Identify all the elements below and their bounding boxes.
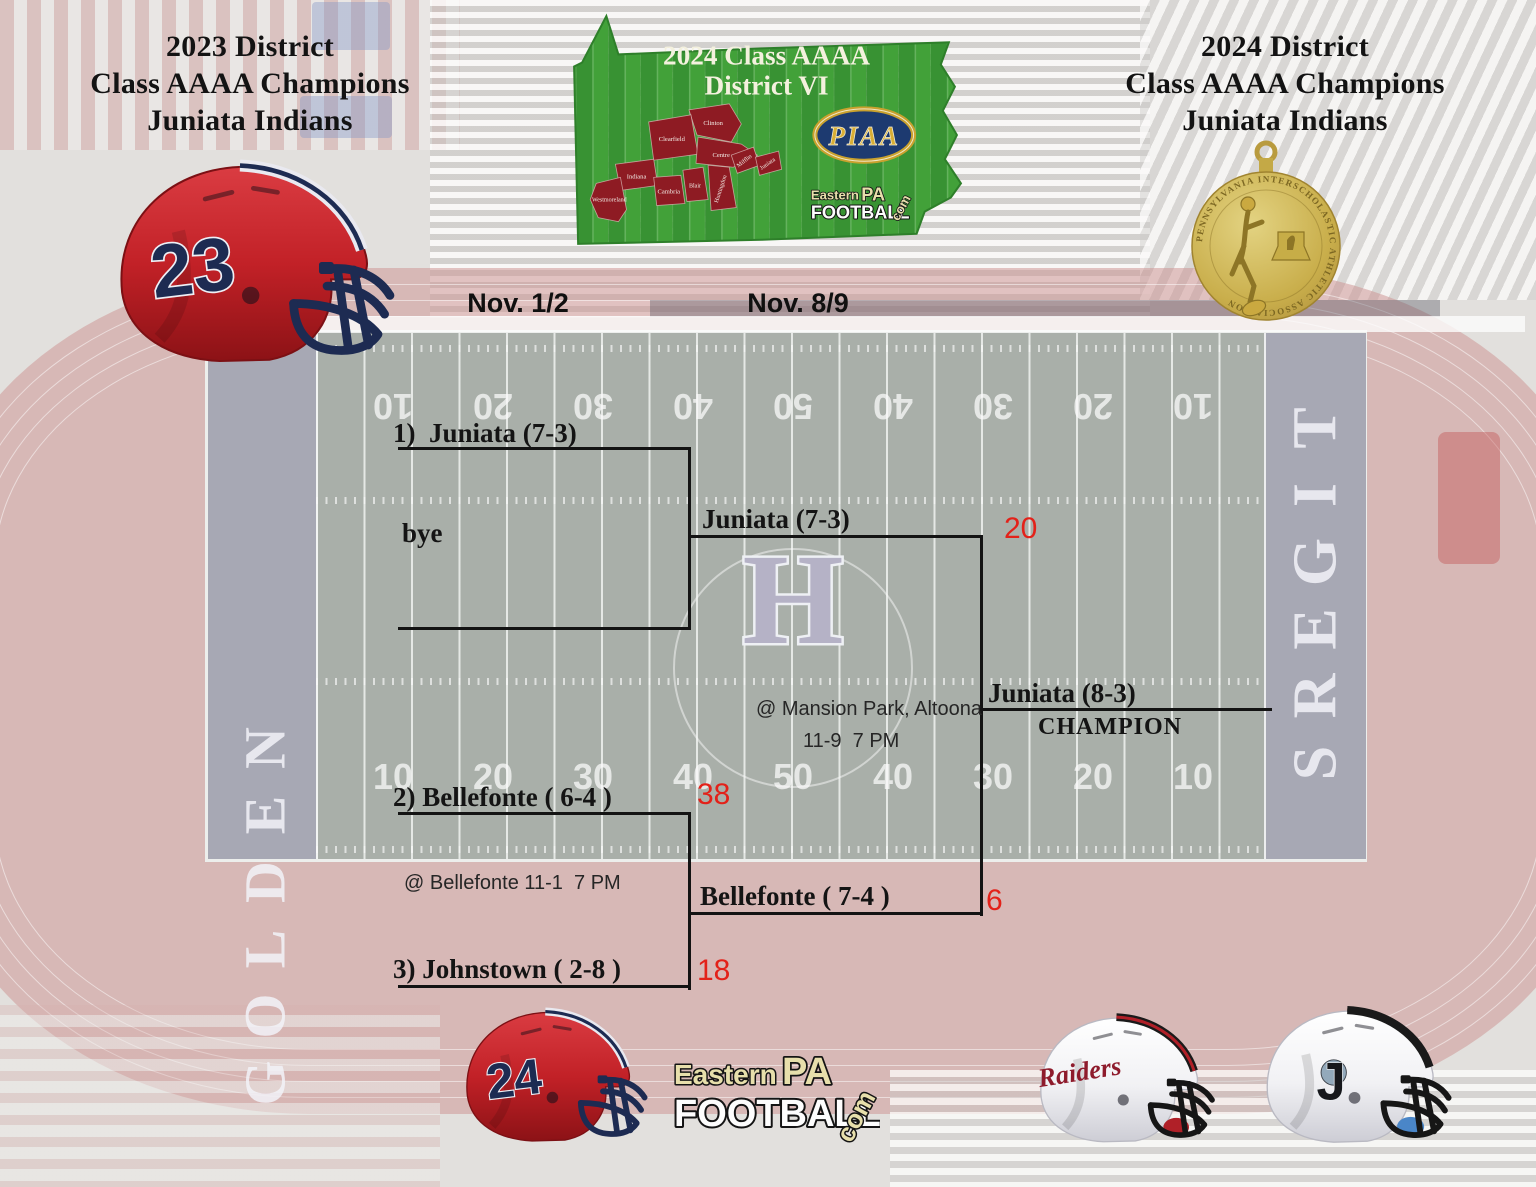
piaa-medal: PENNSYLVANIA INTERSCHOLASTIC ATHLETIC AS… [1185, 136, 1347, 336]
juniata-2024-helmet: 24 [446, 1000, 650, 1164]
county-label: Blair [689, 183, 701, 189]
yard-number: 50 [773, 756, 813, 798]
endzone-letter: E [1281, 608, 1352, 649]
bracket-line [688, 535, 983, 538]
yard-number: 10 [1173, 756, 1213, 798]
finalist1-label: Juniata (7-3) [702, 504, 850, 535]
yard-number: 50 [773, 385, 813, 427]
endzone-letter: D [232, 861, 299, 903]
medal-hanger [1259, 158, 1273, 172]
finalist2-score: 6 [986, 884, 1003, 918]
title-line: Class AAAA Champions [1100, 65, 1470, 102]
bracket-line [398, 812, 690, 815]
map-title-line1: 2024 Class AAAA [663, 41, 870, 71]
piaa-text: PIAA [827, 121, 900, 151]
bracket-line [980, 708, 1272, 711]
county-label: Westmoreland [592, 198, 627, 204]
endzone-letter: E [232, 796, 299, 835]
seed1-label: 1) Juniata (7-3) [393, 418, 577, 449]
title-line: 2024 District [1100, 28, 1470, 65]
midfield-letter: H [742, 528, 843, 672]
hash-marks [316, 497, 1266, 504]
county-label: Centre [712, 152, 730, 159]
brand-pa: PA [782, 1051, 832, 1093]
brand-eastern: Eastern [674, 1059, 777, 1090]
hash-marks [316, 846, 1266, 853]
yard-number: 40 [873, 756, 913, 798]
endzone-letter: R [1281, 674, 1352, 719]
champion-label: CHAMPION [1030, 714, 1190, 741]
map-title-line2: District VI [704, 71, 828, 101]
seed2-label: 2) Bellefonte ( 6-4 ) [393, 782, 612, 813]
title-2024-champions: 2024 District Class AAAA Champions Junia… [1100, 28, 1470, 139]
seed3-score: 18 [697, 954, 730, 988]
endzone-letter: O [232, 993, 299, 1038]
helmet-number-23: 23 [146, 220, 239, 314]
champion-team: Juniata (8-3) [988, 678, 1136, 709]
bracket-line [980, 535, 983, 916]
round1-date: Nov. 1/2 [448, 288, 588, 319]
county-label: Clinton [703, 120, 723, 127]
brand-pa: PA [861, 185, 885, 205]
bracket-line [398, 627, 691, 630]
football-field: 10 20 30 40 50 40 30 20 10 10 20 30 40 5… [205, 330, 1367, 862]
seed3-label: 3) Johnstown ( 2-8 ) [393, 954, 621, 985]
title-line: 2023 District [55, 28, 445, 65]
yard-number: 20 [1073, 756, 1113, 798]
seed2-score: 38 [697, 778, 730, 812]
finalist2-label: Bellefonte ( 7-4 ) [700, 881, 890, 912]
juniata-2023-helmet: 23 [90, 148, 398, 396]
endzone-letter: N [232, 727, 299, 769]
bracket-line [398, 985, 690, 988]
title-2023-champions: 2023 District Class AAAA Champions Junia… [55, 28, 445, 139]
bye-label: bye [402, 518, 443, 549]
bracket-poster: 10 20 30 40 50 40 30 20 10 10 20 30 40 5… [0, 0, 1536, 1187]
johnstown-helmet: J [1246, 998, 1454, 1166]
piaa-logo: PIAA [815, 109, 914, 161]
bellefonte-raiders-helmet: Raiders [1020, 1006, 1218, 1164]
hash-marks [316, 345, 1266, 352]
yard-number: 30 [973, 385, 1013, 427]
helmet-number-24: 24 [483, 1048, 545, 1110]
round2-date: Nov. 8/9 [728, 288, 868, 319]
semifinal-venue: @ Bellefonte 11-1 7 PM [404, 872, 621, 895]
endzone-letter: L [232, 930, 299, 969]
endzone-letter: G [232, 1060, 299, 1105]
endzone-letter: I [1281, 483, 1352, 507]
brand-eastern: Eastern [811, 188, 859, 203]
endzone-letter: T [1281, 407, 1352, 448]
title-line: Class AAAA Champions [55, 65, 445, 102]
bracket-line [688, 912, 983, 915]
bracket-line [398, 447, 690, 450]
final-time: 11-9 7 PM [803, 730, 899, 753]
yard-number: 10 [1173, 385, 1213, 427]
final-venue: @ Mansion Park, Altoona [756, 698, 982, 721]
title-line: Juniata Indians [55, 102, 445, 139]
county-label: Indiana [627, 173, 647, 180]
easternpa-football-logo-large: Eastern PA FOOTBALL com [668, 1048, 880, 1148]
bracket-line [688, 812, 691, 990]
pennsylvania-map: 2024 Class AAAA District VI Clinton Clea… [560, 6, 968, 256]
yard-number: 40 [873, 385, 913, 427]
bleachers-bottom-left [0, 1005, 440, 1187]
left-endzone [208, 333, 318, 859]
county-label: Cambria [658, 188, 681, 195]
county-label: Clearfield [659, 136, 686, 143]
title-line: Juniata Indians [1100, 102, 1470, 139]
johnstown-j-logo: J [1317, 1054, 1346, 1112]
yard-number: 30 [973, 756, 1013, 798]
finalist1-score: 20 [1004, 512, 1037, 546]
bracket-line [688, 447, 691, 630]
yard-number: 30 [573, 385, 613, 427]
endzone-letter: S [1281, 746, 1352, 780]
red-mat [1438, 432, 1500, 564]
endzone-letter: G [1281, 538, 1352, 586]
yard-number: 40 [673, 385, 713, 427]
yard-number: 20 [1073, 385, 1113, 427]
medal-disc [1192, 172, 1340, 320]
